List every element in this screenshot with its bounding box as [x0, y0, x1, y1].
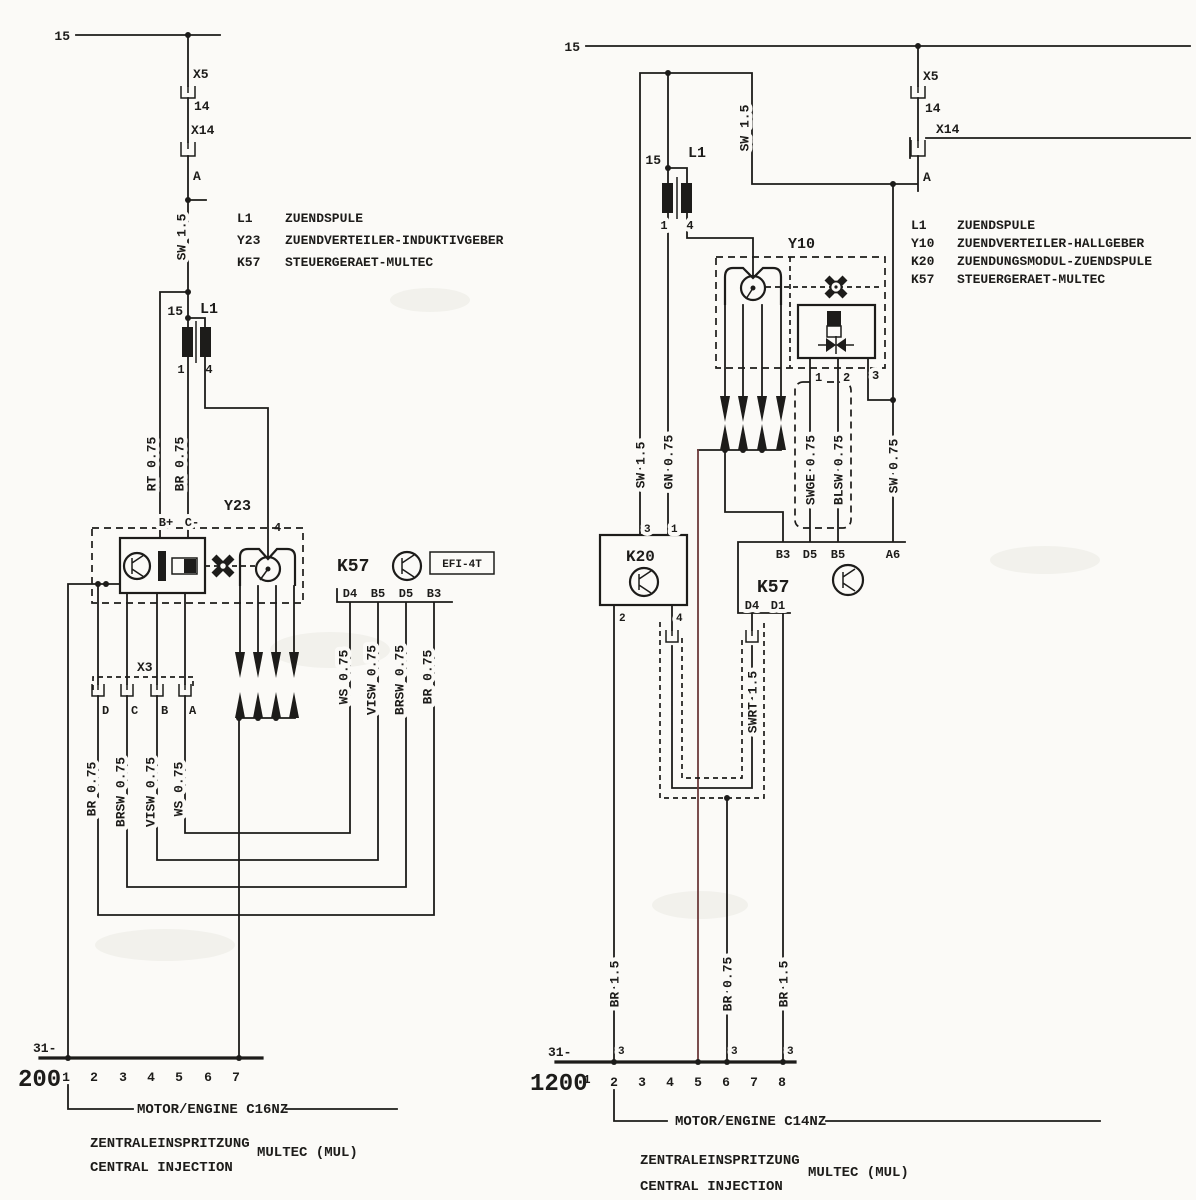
- x3-pin-b: B: [161, 704, 168, 718]
- wire-label-sw075: SW 0.75: [887, 438, 902, 493]
- ecu-pin-d1: D1: [771, 599, 785, 613]
- spark-arrows-right: [720, 396, 786, 450]
- distributor-pin4-label: 4: [274, 521, 281, 535]
- connector-x5-icon: [911, 86, 925, 98]
- coil-terminal-4: 4: [205, 363, 212, 377]
- track-number: 1: [62, 1070, 70, 1085]
- left-diagram: 15 X5 14 X14 A SW 1.5 15 L1 1 4 RT 0.75 …: [18, 29, 504, 1176]
- wire-label-brsw: BRSW 0.75: [393, 645, 408, 715]
- legend-desc: ZUENDUNGSMODUL-ZUENDSPULE: [957, 254, 1152, 269]
- ground-pin-3: 3: [731, 1046, 738, 1058]
- terminal-15-label: 15: [54, 29, 70, 44]
- coil-ref-label: L1: [200, 301, 218, 318]
- ground-pin-3: 3: [618, 1046, 625, 1058]
- wire-label-x3-brsw: BRSW 0.75: [114, 757, 129, 827]
- wire-label-x3-br: BR 0.75: [85, 761, 100, 816]
- coil-terminal-15: 15: [645, 153, 661, 168]
- distributor-ref-label: Y23: [224, 498, 251, 515]
- x3-pin-d: D: [102, 704, 109, 718]
- track-number: 4: [666, 1075, 674, 1090]
- wire-label-sw15: SW 1.5: [175, 213, 190, 260]
- ecu-pin-a6: A6: [886, 548, 900, 562]
- ground-terminal-label: 31-: [548, 1045, 571, 1060]
- system-label-de: ZENTRALEINSPRITZUNG: [90, 1136, 250, 1152]
- efi-tag-label: EFI-4T: [442, 559, 482, 571]
- ignition-coil-l1-right: [662, 177, 692, 219]
- legend-desc: ZUENDSPULE: [957, 218, 1035, 233]
- right-junction-dots: [611, 43, 921, 1065]
- ecu-pin-d4: D4: [343, 587, 357, 601]
- left-legend: L1 ZUENDSPULE Y23 ZUENDVERTEILER-INDUKTI…: [237, 211, 504, 270]
- x3-pin-c: C: [131, 704, 138, 718]
- transistor-icon: [833, 565, 863, 595]
- connector-x14-icon: [911, 140, 925, 156]
- track-number: 5: [694, 1075, 702, 1090]
- connector-x14-label: X14: [936, 122, 960, 137]
- connector-x14-label: X14: [191, 123, 215, 138]
- k20-pin-2: 2: [619, 613, 626, 625]
- module-ref-label: K20: [626, 548, 655, 566]
- ground-terminal-label: 31-: [33, 1041, 56, 1056]
- connector-x14-icon: [181, 142, 195, 156]
- engine-label: MOTOR/ENGINE C14NZ: [675, 1114, 826, 1130]
- track-number: 8: [778, 1075, 786, 1090]
- track-number: 2: [610, 1075, 618, 1090]
- wire-label-br15-right: BR 1.5: [777, 960, 792, 1007]
- legend-key: L1: [911, 218, 927, 233]
- y10-pin-3: 3: [872, 369, 879, 383]
- track-number: 3: [638, 1075, 646, 1090]
- wire-label-visw: VISW 0.75: [365, 645, 380, 715]
- system-label-en: CENTRAL INJECTION: [640, 1179, 783, 1195]
- legend-key: K57: [237, 255, 260, 270]
- ecu-pin-d4: D4: [745, 599, 759, 613]
- legend-key: K57: [911, 272, 934, 287]
- plug-icon: [172, 558, 197, 574]
- schematic-canvas: 15 X5 14 X14 A SW 1.5 15 L1 1 4 RT 0.75 …: [0, 0, 1196, 1200]
- coil-terminal-4: 4: [686, 219, 693, 233]
- wire-label-ws: WS 0.75: [337, 649, 352, 704]
- ecu-ref-label: K57: [337, 557, 369, 577]
- track-number: 2: [90, 1070, 98, 1085]
- connector-x5-label: X5: [923, 69, 939, 84]
- connector-x3-label: X3: [137, 660, 153, 675]
- transistor-icon: [393, 552, 421, 580]
- wire-label-gn075: GN 0.75: [662, 434, 677, 489]
- k20-pin-4: 4: [676, 613, 683, 625]
- x5-pin-label: 14: [194, 99, 210, 114]
- coil-terminal-1: 1: [177, 363, 184, 377]
- wiring-diagram-page: 15 X5 14 X14 A SW 1.5 15 L1 1 4 RT 0.75 …: [0, 0, 1196, 1200]
- wire-label-blsw: BLSW 0.75: [832, 435, 847, 505]
- ignition-coil-l1-left: [182, 321, 211, 363]
- wire-label-br075: BR 0.75: [721, 956, 736, 1011]
- legend-desc: STEUERGERAET-MULTEC: [957, 272, 1105, 287]
- x3-pin-a: A: [189, 704, 197, 718]
- system-label-en: CENTRAL INJECTION: [90, 1160, 233, 1176]
- system-code-label: MULTEC (MUL): [257, 1145, 358, 1161]
- page-number: 1200: [530, 1071, 588, 1098]
- transistor-icon: [124, 553, 150, 579]
- ecu-pin-d5: D5: [399, 587, 413, 601]
- ignition-module-k20: [600, 535, 687, 605]
- coil-ref-label: L1: [688, 145, 706, 162]
- wire-label-br15-left: BR 1.5: [608, 960, 623, 1007]
- connector-x5-label: X5: [193, 67, 209, 82]
- track-number: 6: [204, 1070, 212, 1085]
- ecu-pin-b3: B3: [776, 548, 790, 562]
- track-number: 4: [147, 1070, 155, 1085]
- legend-key: Y23: [237, 233, 261, 248]
- y10-pin-2: 2: [843, 371, 850, 385]
- system-label-de: ZENTRALEINSPRITZUNG: [640, 1153, 800, 1169]
- ecu-pin-b3: B3: [427, 587, 441, 601]
- legend-key: L1: [237, 211, 253, 226]
- transistor-icon: [630, 568, 658, 596]
- hall-sensor-box: [798, 305, 875, 358]
- distributor-y10: [716, 257, 885, 368]
- wire-label-sw15-top: SW 1.5: [738, 104, 753, 151]
- track-number: 1: [583, 1073, 590, 1087]
- track-number: 6: [722, 1075, 730, 1090]
- track-number: 7: [750, 1075, 758, 1090]
- system-code-label: MULTEC (MUL): [808, 1165, 909, 1181]
- wire-label-swrt: SWRT 1.5: [746, 671, 761, 734]
- wire-label-br: BR 0.75: [421, 649, 436, 704]
- legend-desc: STEUERGERAET-MULTEC: [285, 255, 433, 270]
- wire-label-x3-visw: VISW 0.75: [144, 757, 159, 827]
- track-number: 5: [175, 1070, 183, 1085]
- wire-label-swge: SWGE 0.75: [804, 435, 819, 505]
- page-number: 200: [18, 1067, 61, 1094]
- legend-key: K20: [911, 254, 935, 269]
- ecu-ref-label: K57: [757, 578, 789, 598]
- x14-pin-label: A: [923, 170, 931, 185]
- hall-pickup-icon: [827, 278, 845, 296]
- pin-cminus-label: C-: [185, 516, 199, 530]
- distributor-y23: [92, 528, 303, 603]
- right-diagram: 15 X5 14 X14 A SW 1.5 15 L1 1 4 SW 1.5 G…: [530, 40, 1190, 1195]
- right-labels: 15 X5 14 X14 A SW 1.5 15 L1 1 4 SW 1.5 G…: [530, 40, 960, 1195]
- pin-bplus-label: B+: [159, 516, 173, 530]
- wire-label-x3-ws: WS 0.75: [172, 761, 187, 816]
- k20-pin-1: 1: [671, 524, 678, 536]
- ecu-k57-right: [833, 565, 863, 595]
- coil-terminal-1: 1: [660, 219, 667, 233]
- k20-pin-3: 3: [644, 524, 651, 536]
- x5-pin-label: 14: [925, 101, 941, 116]
- ecu-pin-b5: B5: [371, 587, 385, 601]
- legend-key: Y10: [911, 236, 935, 251]
- legend-desc: ZUENDVERTEILER-HALLGEBER: [957, 236, 1144, 251]
- connector-x5-icon: [181, 86, 195, 98]
- connector-x3: [92, 677, 193, 696]
- ground-pin-3: 3: [787, 1046, 794, 1058]
- condenser-icon: [158, 551, 166, 581]
- legend-desc: ZUENDVERTEILER-INDUKTIVGEBER: [285, 233, 504, 248]
- wire-label-sw15-k20: SW 1.5: [634, 441, 649, 488]
- coil-terminal-15: 15: [167, 304, 183, 319]
- legend-desc: ZUENDSPULE: [285, 211, 363, 226]
- y10-pin-1: 1: [815, 371, 822, 385]
- track-number: 7: [232, 1070, 240, 1085]
- ecu-pin-b5: B5: [831, 548, 845, 562]
- right-legend: L1 ZUENDSPULE Y10 ZUENDVERTEILER-HALLGEB…: [911, 218, 1152, 287]
- wire-label-br075: BR 0.75: [173, 436, 188, 491]
- track-number: 3: [119, 1070, 127, 1085]
- distributor-ref-label: Y10: [788, 236, 815, 253]
- terminal-15-label: 15: [564, 40, 580, 55]
- engine-label: MOTOR/ENGINE C16NZ: [137, 1102, 288, 1118]
- wire-label-rt075: RT 0.75: [145, 436, 160, 491]
- ecu-pin-d5: D5: [803, 548, 817, 562]
- x14-pin-label: A: [193, 169, 201, 184]
